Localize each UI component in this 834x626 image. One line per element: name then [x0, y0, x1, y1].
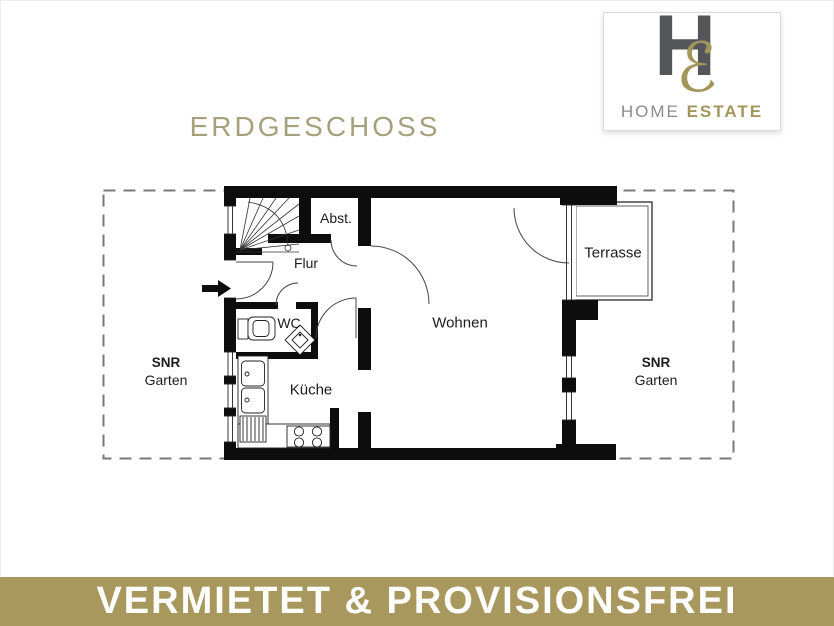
garden-left-garten: Garten: [145, 372, 188, 390]
garden-right-garten: Garten: [635, 372, 678, 390]
room-label-flur: Flur: [294, 255, 318, 271]
room-label-wc: WC: [277, 315, 300, 331]
room-label-wohnen: Wohnen: [432, 315, 488, 332]
floorplan-page: ERDGESCHOSS H ℰ HOME ESTATE: [0, 0, 834, 626]
floorplan-drawing: [0, 0, 834, 626]
status-banner: VERMIETET & PROVISIONSFREI: [0, 577, 834, 626]
room-label-abst: Abst.: [320, 210, 352, 226]
room-label-kueche: Küche: [290, 382, 333, 399]
garden-label-left: SNR Garten: [145, 355, 188, 389]
garden-label-right: SNR Garten: [635, 355, 678, 389]
room-label-terrasse: Terrasse: [584, 245, 642, 262]
banner-text: VERMIETET & PROVISIONSFREI: [0, 577, 834, 626]
garden-right-snr: SNR: [635, 355, 678, 372]
garden-left-snr: SNR: [145, 355, 188, 372]
